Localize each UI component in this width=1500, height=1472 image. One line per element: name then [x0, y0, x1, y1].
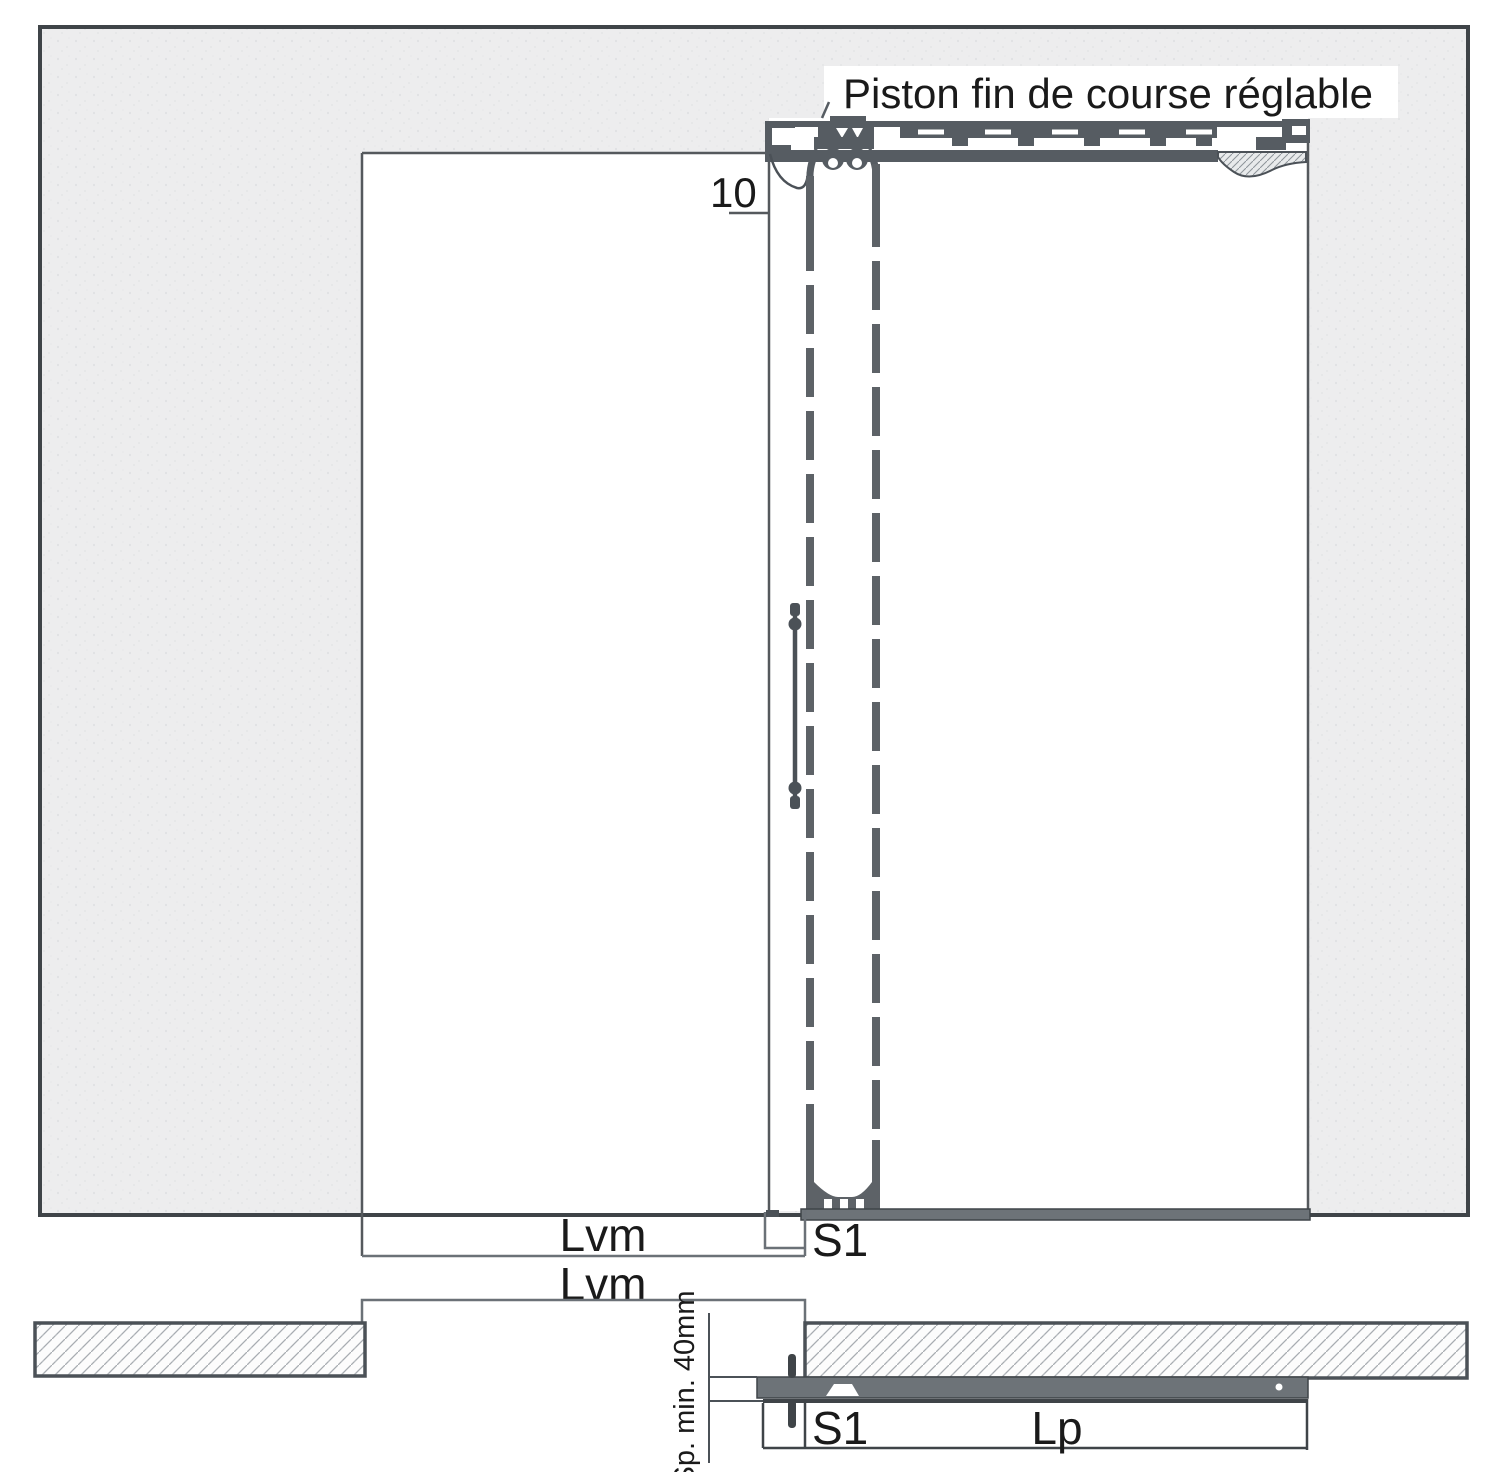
floor-guide [814, 1182, 872, 1211]
lvm-plan-label: Lvm [560, 1258, 647, 1310]
s1-plan-label: S1 [812, 1402, 868, 1454]
s1-elevation-label: S1 [812, 1214, 868, 1266]
door-handle [789, 603, 802, 809]
pocket-door-technical-drawing: Piston fin de course réglable [0, 0, 1500, 1472]
door-panel-hidden [810, 164, 876, 1211]
fixing-dot [1276, 1384, 1283, 1391]
plan-view: Lvm Sp. min. 40mm S1 Lp [35, 1258, 1467, 1472]
wall-section-right [805, 1323, 1467, 1378]
wall-section-left [35, 1323, 365, 1376]
floor-band [801, 1209, 1310, 1220]
sp-min-label: Sp. min. 40mm [669, 1291, 701, 1472]
sp-dimension [709, 1313, 763, 1463]
lp-label: Lp [1031, 1402, 1082, 1454]
lvm-elevation-label: Lvm [560, 1209, 647, 1261]
diagram-title: Piston fin de course réglable [843, 70, 1373, 117]
bolt-upper [788, 1354, 796, 1378]
drawing-canvas: Piston fin de course réglable [0, 0, 1500, 1472]
bolt-lower [788, 1400, 796, 1428]
gap-dimension-label: 10 [710, 169, 757, 216]
elevation-view: Piston fin de course réglable [40, 27, 1468, 1266]
